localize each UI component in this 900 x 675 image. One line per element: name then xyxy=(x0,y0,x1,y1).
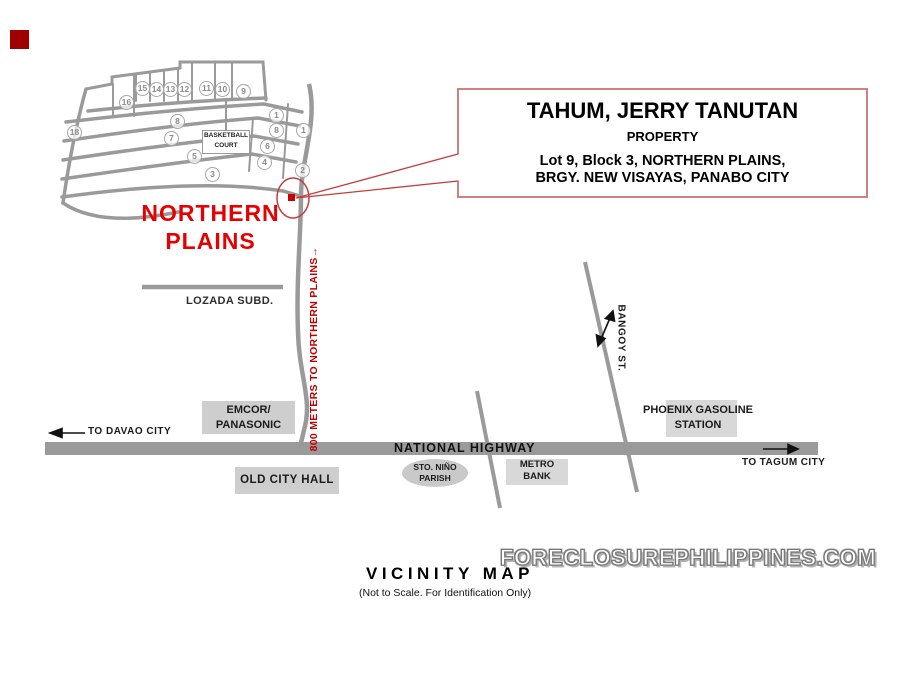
lot-number: 14 xyxy=(149,82,164,97)
to-tagum-label: TO TAGUM CITY xyxy=(742,457,825,468)
phoenix-station-label: PHOENIX GASOLINE STATION xyxy=(628,403,768,434)
callout-address: Lot 9, Block 3, NORTHERN PLAINS, BRGY. N… xyxy=(459,153,866,188)
davao-arrow-head xyxy=(50,429,62,438)
subdivision-left-boundary xyxy=(63,89,86,203)
lot-number: 15 xyxy=(135,81,150,96)
basketball-court-label: BASKETBALL COURT xyxy=(202,130,250,154)
old-city-hall-box: OLD CITY HALL xyxy=(235,467,339,494)
national-highway-label: NATIONAL HIGHWAY xyxy=(394,441,535,455)
slide-corner-marker xyxy=(10,30,29,49)
property-callout-box: TAHUM, JERRY TANUTAN PROPERTY Lot 9, Blo… xyxy=(457,88,868,198)
bangoy-arrow-head-down xyxy=(597,335,606,346)
lot-number: 1 xyxy=(296,123,311,138)
map-subtitle: (Not to Scale. For Identification Only) xyxy=(359,587,531,599)
lot-number: 11 xyxy=(199,81,214,96)
lozada-subd-label: LOZADA SUBD. xyxy=(186,295,274,307)
lot-number: 4 xyxy=(257,155,272,170)
callout-owner-name: TAHUM, JERRY TANUTAN xyxy=(459,98,866,124)
lot-number: 8 xyxy=(170,114,185,129)
road-distance-note: 800 METERS TO NORTHERN PLAINS→ xyxy=(308,247,320,452)
metro-bank-box: METRO BANK xyxy=(506,459,568,485)
lot-number: 12 xyxy=(177,82,192,97)
street-arc xyxy=(62,186,300,197)
property-highlight-ellipse xyxy=(277,178,309,218)
lot-number: 3 xyxy=(205,167,220,182)
lot-number: 1 xyxy=(269,108,284,123)
bangoy-street-label: BANGOY ST. xyxy=(616,305,627,372)
bangoy-road xyxy=(585,262,637,492)
lot-number: 18 xyxy=(67,125,82,140)
lot-number: 9 xyxy=(236,84,251,99)
lot-number: 6 xyxy=(260,139,275,154)
vicinity-map-page: { "map": { "subdivision_name": "NORTHERN… xyxy=(0,0,900,675)
lot-number: 8 xyxy=(269,123,284,138)
lot-number: 7 xyxy=(164,131,179,146)
lot-number: 13 xyxy=(163,82,178,97)
bangoy-arrow-head-up xyxy=(606,311,615,321)
leader-lines xyxy=(296,154,458,198)
subdivision-name-label: NORTHERN PLAINS xyxy=(140,199,281,255)
tagum-arrow-head xyxy=(788,445,798,454)
lot-number: 5 xyxy=(187,149,202,164)
lot-number: 10 xyxy=(215,82,230,97)
street-arc xyxy=(88,98,266,111)
property-marker xyxy=(288,194,295,201)
lot-number: 16 xyxy=(119,95,134,110)
bangoy-double-arrow xyxy=(601,318,610,339)
callout-property-label: PROPERTY xyxy=(459,129,866,144)
to-davao-label: TO DAVAO CITY xyxy=(88,426,171,437)
watermark: FORECLOSUREPHILIPPINES.COM xyxy=(500,545,876,571)
lot-number: 2 xyxy=(295,163,310,178)
map-title: VICINITY MAP xyxy=(366,564,534,584)
emcor-panasonic-box: EMCOR/ PANASONIC xyxy=(202,401,295,434)
sto-nino-parish-ellipse: STO. NIÑO PARISH xyxy=(402,459,468,487)
